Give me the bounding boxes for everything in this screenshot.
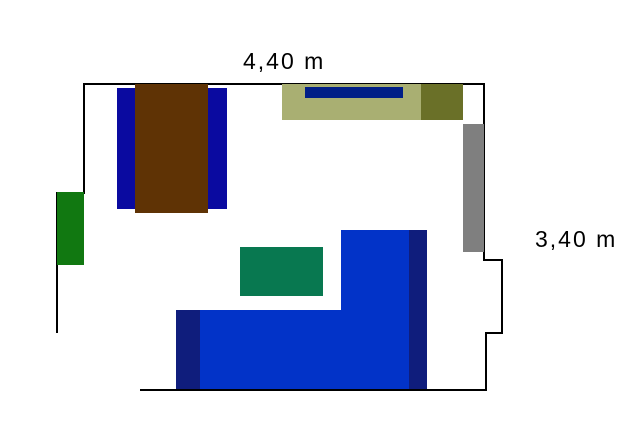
cabinet (421, 84, 463, 120)
shelf-item (305, 87, 403, 98)
dimension-label-width: 4,40 m (243, 50, 325, 73)
sofa-chaise (176, 310, 341, 389)
nightstand-right (208, 88, 227, 209)
nightstand-left (117, 88, 135, 209)
floor-plan: 4,40 m 3,40 m (0, 0, 640, 432)
door (57, 192, 84, 265)
radiator (463, 124, 484, 252)
dimension-label-height: 3,40 m (535, 228, 617, 251)
bed (135, 84, 208, 213)
sofa-armrest-right (409, 230, 427, 389)
table (240, 247, 323, 296)
sofa-armrest-left (176, 310, 200, 389)
